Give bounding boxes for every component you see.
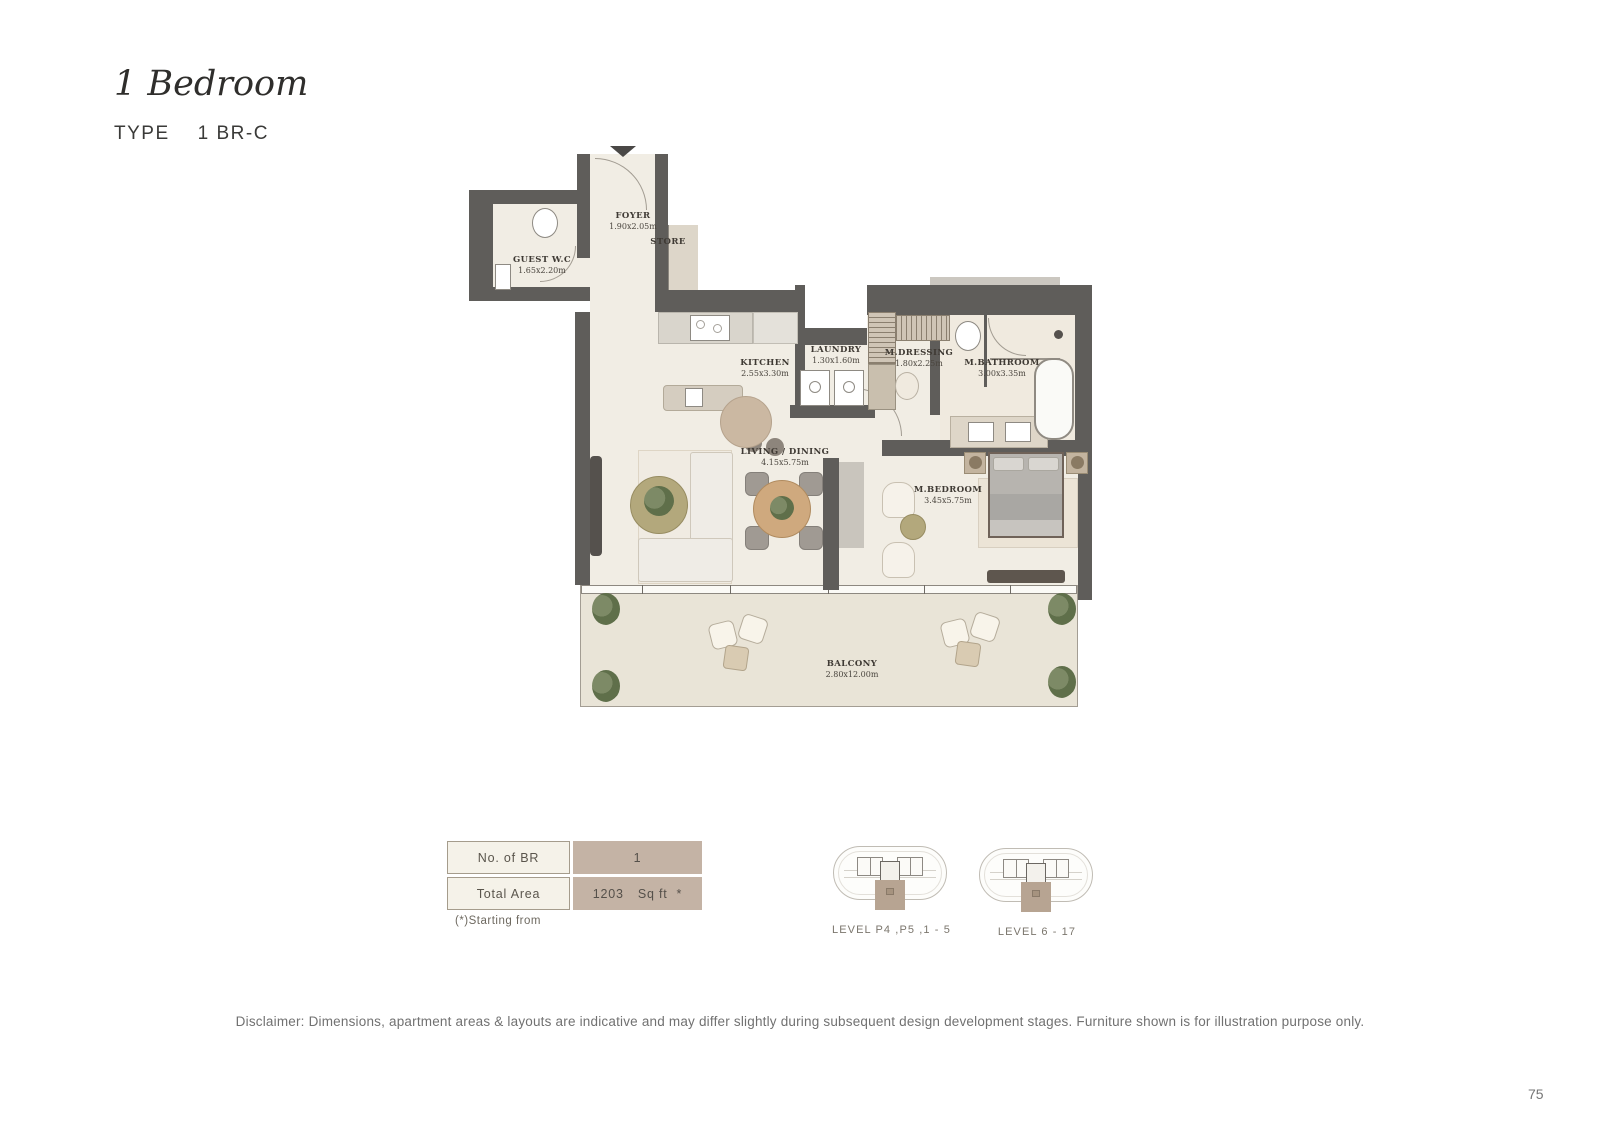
building-unit: [1043, 859, 1069, 878]
exterior-void: [805, 285, 867, 328]
tv-console: [590, 456, 602, 556]
page-number: 75: [1528, 1086, 1544, 1102]
wardrobe-top: [896, 315, 950, 341]
shower-head-icon: [1054, 330, 1063, 339]
plant-icon: [592, 670, 620, 702]
plant-icon: [644, 486, 674, 516]
wardrobe-cabinet: [868, 364, 896, 410]
balcony-table: [954, 640, 981, 667]
row-label: Total Area: [447, 877, 570, 910]
room-label-store: STORE: [638, 238, 698, 248]
stove-burner: [713, 324, 722, 333]
row-value: 1: [573, 841, 702, 874]
balcony-table: [722, 644, 749, 671]
table-footnote: (*)Starting from: [455, 915, 541, 927]
plant-icon: [1048, 666, 1076, 698]
plant-icon: [1048, 593, 1076, 625]
glass-door-tick: [730, 585, 731, 594]
key-plan-high-levels: LEVEL 6 - 17: [978, 846, 1096, 942]
page-title: 1 Bedroom: [114, 64, 308, 104]
bedroom-bench: [987, 570, 1065, 583]
table-row: Total Area 1203 Sq ft *: [447, 877, 707, 910]
pillow: [993, 457, 1024, 471]
wall-living-left: [575, 312, 590, 585]
glass-door-tick: [642, 585, 643, 594]
wall-laundry-top: [805, 328, 867, 345]
floor-plan: FOYER 1.90x2.05m STORE GUEST W.C 1.65x2.…: [462, 146, 1094, 710]
building-unit: [897, 857, 923, 876]
washer-door: [809, 381, 821, 393]
side-table: [900, 514, 926, 540]
nightstand-lamp: [1071, 456, 1084, 469]
stove: [690, 315, 730, 341]
wall-wc-bottom: [469, 287, 590, 301]
wall-wc-left: [469, 190, 493, 301]
wall-divider: [823, 458, 839, 590]
kitchen-counter-2: [753, 312, 798, 344]
balcony-floor: [580, 585, 1078, 707]
wall-foyer-left: [577, 154, 590, 258]
bed-blanket: [990, 494, 1062, 520]
wall-bath-top: [930, 285, 1092, 315]
wall-dressing-top: [867, 285, 930, 315]
bedroom-closet: [839, 462, 864, 548]
wall-kitchen-top: [655, 290, 795, 312]
store-niche: [668, 225, 698, 290]
wall-wc-top: [493, 190, 590, 204]
pillow: [1028, 457, 1059, 471]
room-label-foyer: FOYER 1.90x2.05m: [583, 212, 683, 231]
plant-icon: [592, 593, 620, 625]
bed-sheet: [990, 520, 1062, 536]
island-sink: [685, 388, 703, 407]
key-plan-label: LEVEL 6 - 17: [978, 926, 1096, 938]
disclaimer-text: Disclaimer: Dimensions, apartment areas …: [20, 1014, 1580, 1029]
room-label-balcony: BALCONY 2.80x12.00m: [802, 660, 902, 679]
unit-highlight-mark: [1032, 890, 1040, 897]
room-label-guest-wc: GUEST W.C 1.65x2.20m: [492, 256, 592, 275]
room-label-bedroom: M.BEDROOM 3.45x5.75m: [898, 486, 998, 505]
toilet: [532, 208, 558, 238]
unit-highlight: [1021, 882, 1051, 912]
info-table: No. of BR 1 Total Area 1203 Sq ft *: [447, 841, 707, 913]
room-label-living: LIVING / DINING 4.15x5.75m: [725, 448, 845, 467]
vanity-sink: [1005, 422, 1031, 442]
key-plan-label: LEVEL P4 ,P5 ,1 - 5: [832, 924, 950, 936]
dining-chair: [799, 526, 823, 550]
plant-icon: [770, 496, 794, 520]
sofa-chaise: [638, 538, 733, 582]
nightstand-lamp: [969, 456, 982, 469]
toilet: [955, 321, 981, 351]
unit-type: TYPE1 BR-C: [114, 123, 269, 145]
vanity-sink: [968, 422, 994, 442]
unit-highlight-mark: [886, 888, 894, 895]
glass-door-tick: [1010, 585, 1011, 594]
type-value: 1 BR-C: [198, 123, 269, 144]
type-label: TYPE: [114, 123, 170, 144]
dressing-pouf: [895, 372, 919, 400]
stove-burner: [696, 320, 705, 329]
key-plan-low-levels: LEVEL P4 ,P5 ,1 - 5: [832, 844, 950, 940]
washer-door: [843, 381, 855, 393]
wall-bath-right: [1075, 315, 1092, 456]
kitchen-table: [720, 396, 772, 448]
armchair: [882, 542, 915, 578]
row-value: 1203 Sq ft *: [573, 877, 702, 910]
unit-highlight: [875, 880, 905, 910]
room-label-bathroom: M.BATHROOM 3.00x3.35m: [952, 359, 1052, 378]
table-row: No. of BR 1: [447, 841, 707, 874]
glass-door-tick: [924, 585, 925, 594]
row-label: No. of BR: [447, 841, 570, 874]
entry-arrow-icon: [610, 146, 636, 157]
